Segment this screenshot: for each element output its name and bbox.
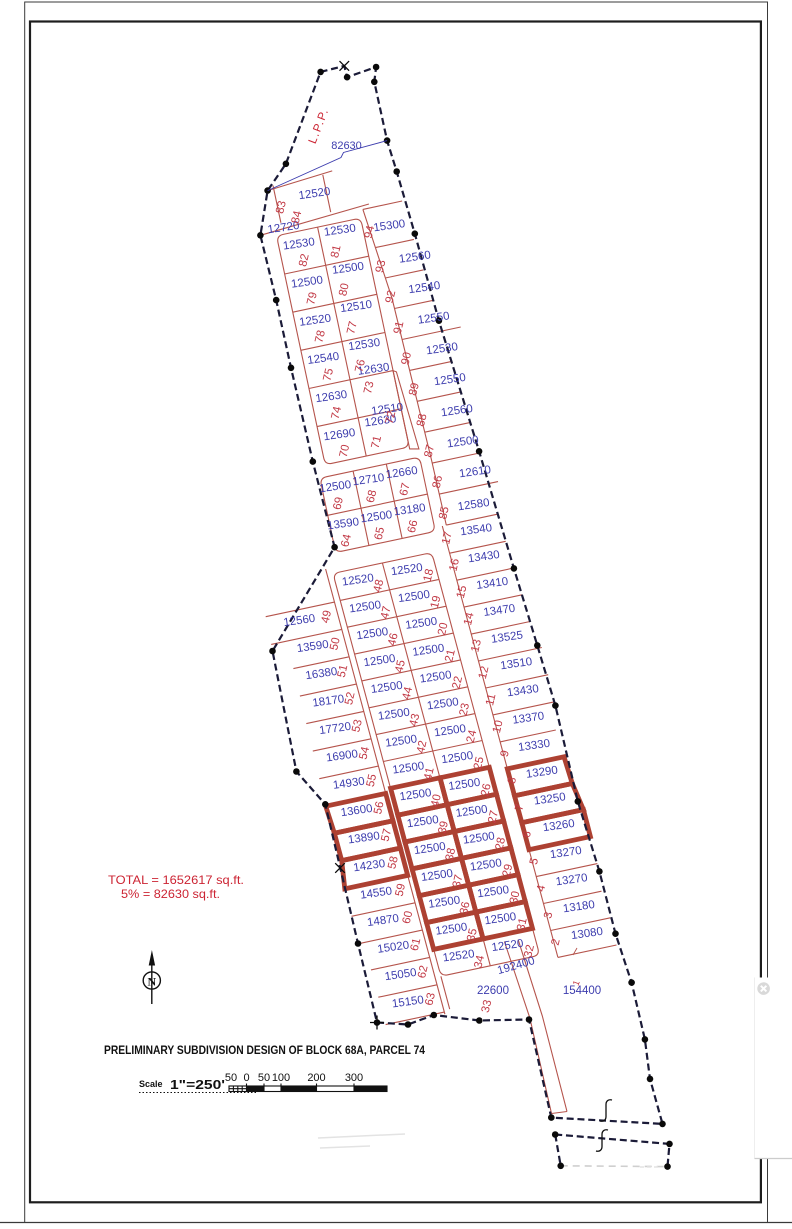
svg-text:154400: 154400 bbox=[563, 985, 601, 997]
svg-text:50: 50 bbox=[258, 1072, 270, 1084]
svg-text:1"=250': 1"=250' bbox=[170, 1077, 225, 1092]
svg-text:22600: 22600 bbox=[477, 985, 509, 997]
svg-text:82630: 82630 bbox=[331, 140, 362, 152]
svg-text:200: 200 bbox=[307, 1072, 325, 1084]
svg-text:N: N bbox=[147, 975, 156, 989]
svg-text:300: 300 bbox=[345, 1072, 363, 1084]
svg-text:TOTAL = 1652617 sq.ft.: TOTAL = 1652617 sq.ft. bbox=[108, 873, 244, 887]
svg-text:5% = 82630 sq.ft.: 5% = 82630 sq.ft. bbox=[121, 887, 220, 901]
svg-text:Scale: Scale bbox=[139, 1079, 163, 1089]
svg-text:0: 0 bbox=[243, 1072, 249, 1084]
svg-text:100: 100 bbox=[272, 1072, 290, 1084]
svg-text:PRELIMINARY SUBDIVISION DESIGN: PRELIMINARY SUBDIVISION DESIGN OF BLOCK … bbox=[104, 1043, 425, 1057]
svg-text:50: 50 bbox=[225, 1072, 237, 1084]
